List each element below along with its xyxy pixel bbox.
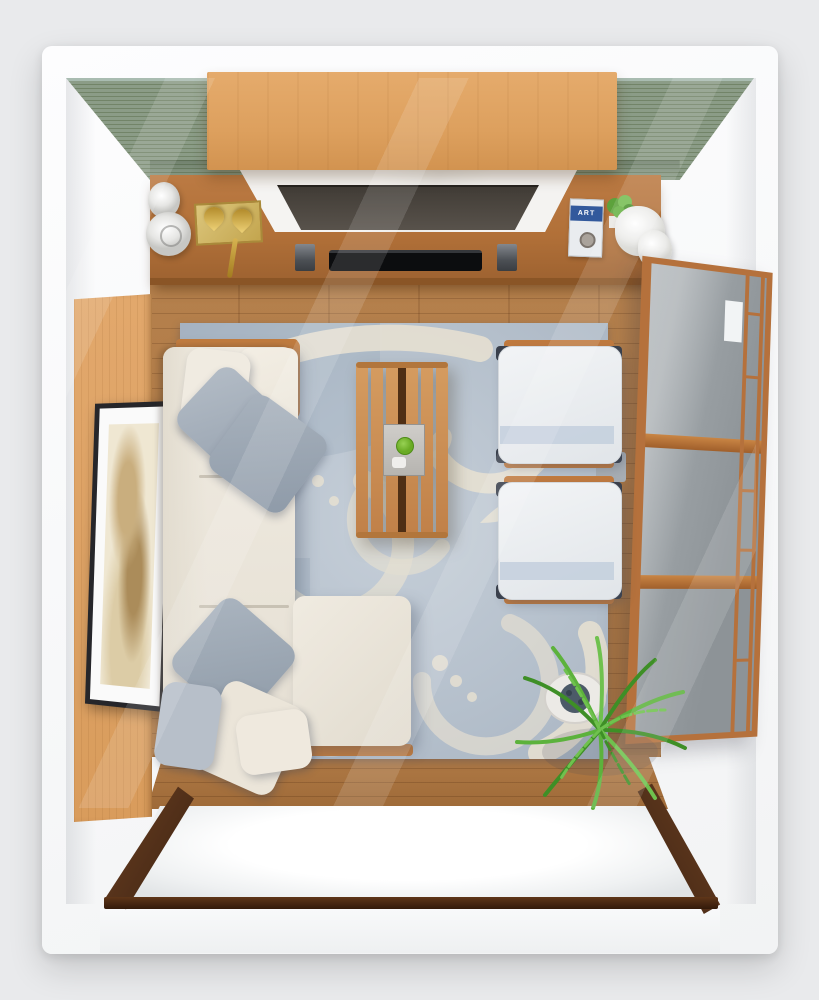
green-apple xyxy=(396,437,414,455)
ceramic-vase xyxy=(146,212,191,256)
walnut-rail-bottom xyxy=(104,897,718,909)
soundbar xyxy=(329,250,482,271)
room-render: ART xyxy=(0,0,819,1000)
sofa-chaise xyxy=(293,596,411,746)
door-white-panel xyxy=(724,300,743,342)
speaker-right xyxy=(497,244,517,271)
chair-cushion xyxy=(498,482,622,600)
throw-pillow-gray xyxy=(152,680,223,772)
coffee-table xyxy=(356,362,448,538)
throw-pillow-cream xyxy=(234,707,314,776)
armchair-bottom xyxy=(496,476,622,604)
framed-artwork xyxy=(85,401,175,712)
chair-blanket-stripe xyxy=(500,426,614,444)
table-end-rail xyxy=(356,362,448,368)
coffee-cup-graphic xyxy=(579,232,596,249)
chair-blanket-stripe xyxy=(500,562,614,580)
bottom-wall xyxy=(100,909,720,953)
art-book-title: ART xyxy=(570,205,603,221)
speaker-left xyxy=(295,244,315,271)
tv-screen xyxy=(277,185,539,230)
palm-fronds xyxy=(517,638,685,808)
armchair-top xyxy=(496,340,622,468)
table-end-rail xyxy=(356,532,448,538)
palm-plant xyxy=(505,630,695,820)
chair-cushion xyxy=(498,346,622,464)
floating-wood-panel xyxy=(207,72,617,170)
brass-tray xyxy=(194,200,263,245)
art-book: ART xyxy=(568,198,604,257)
bottom-light-opening xyxy=(112,806,704,902)
tray-item xyxy=(392,457,406,468)
table-tray xyxy=(383,424,425,476)
artwork-print xyxy=(100,423,159,689)
